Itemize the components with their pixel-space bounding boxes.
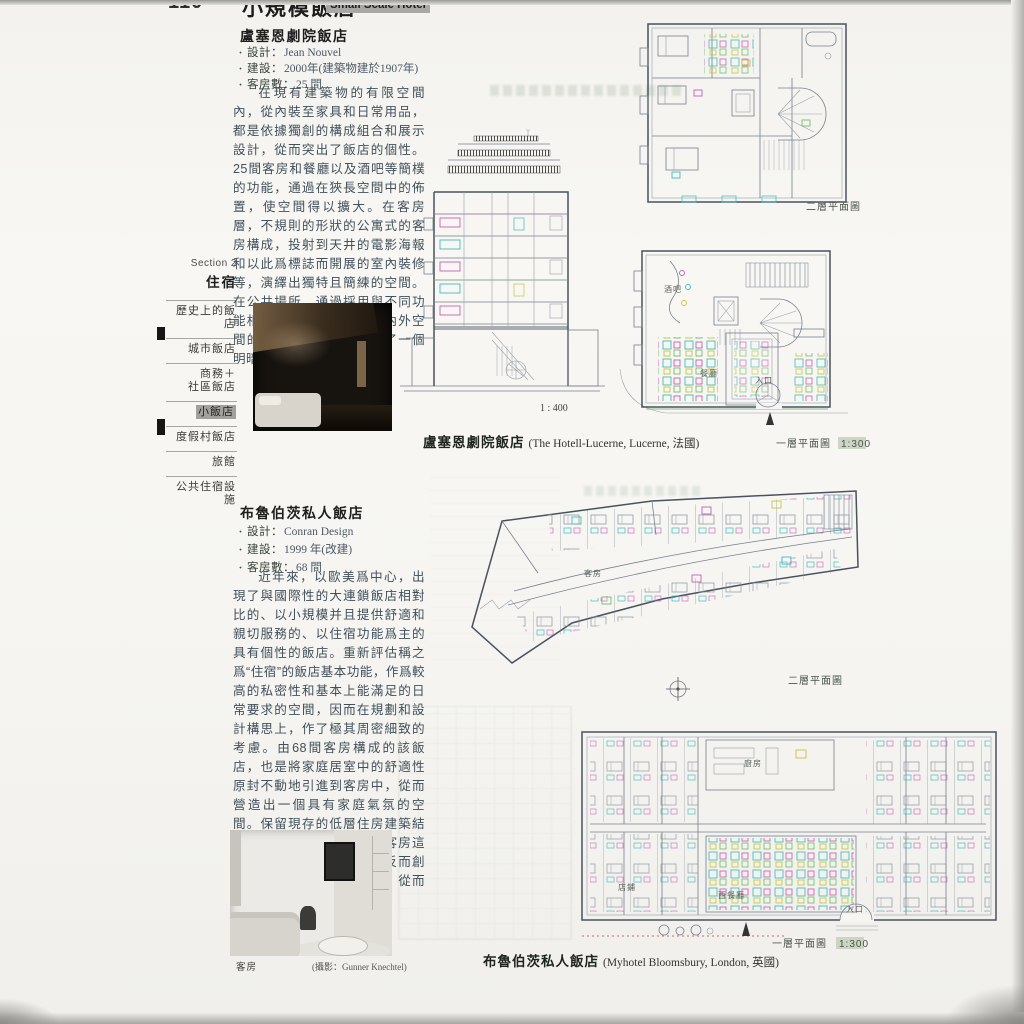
floor-plan-2f-bloomsbury — [472, 491, 858, 663]
plan-c-caption: 二層平面圖 — [788, 675, 843, 687]
scan-edge-top — [0, 0, 1024, 5]
floor-plan-1f-lucerne — [620, 251, 848, 425]
plan-label-kitchen: 廚房 — [744, 758, 762, 768]
scan-edge-right — [1011, 0, 1024, 1024]
book-page: 110 小規模飯店 Small Scale Hotel Section 2 住宿… — [0, 0, 1024, 1024]
plan-label-bar: 酒吧 — [664, 285, 682, 294]
plan-label-restaurant: 餐廳 — [700, 368, 718, 378]
plan-d-scale: 1:300 — [839, 939, 869, 950]
drawings-layer: 1 : 400 二層平面圖 — [0, 0, 1024, 1024]
north-arrow-icon — [742, 922, 750, 936]
scan-corner-shadow — [0, 998, 60, 1024]
plan-b-caption: 一層平面圖 — [776, 438, 831, 450]
plan-d-caption: 一層平面圖 — [772, 938, 827, 950]
plan-a-caption: 二層平面圖 — [806, 201, 861, 213]
north-arrow-icon — [766, 412, 774, 425]
plan-label-guestroom: 客房 — [584, 568, 602, 578]
floor-plan-1f-bloomsbury — [582, 732, 996, 936]
scan-edge-bottom — [0, 1012, 1024, 1024]
section-scale-label: 1 : 400 — [540, 403, 568, 414]
floor-plan-2f-lucerne — [640, 24, 846, 202]
scan-corner-shadow — [944, 984, 1024, 1024]
plan-label-shop: 店鋪 — [618, 882, 636, 892]
plan-label-entrance: 入口 — [755, 376, 773, 385]
plan-b-scale: 1:300 — [841, 439, 871, 450]
building-section-drawing — [400, 130, 605, 391]
plan-label-entrance: 入口 — [846, 905, 864, 914]
plan-label-west-restaurant: 西餐廳 — [718, 890, 745, 900]
